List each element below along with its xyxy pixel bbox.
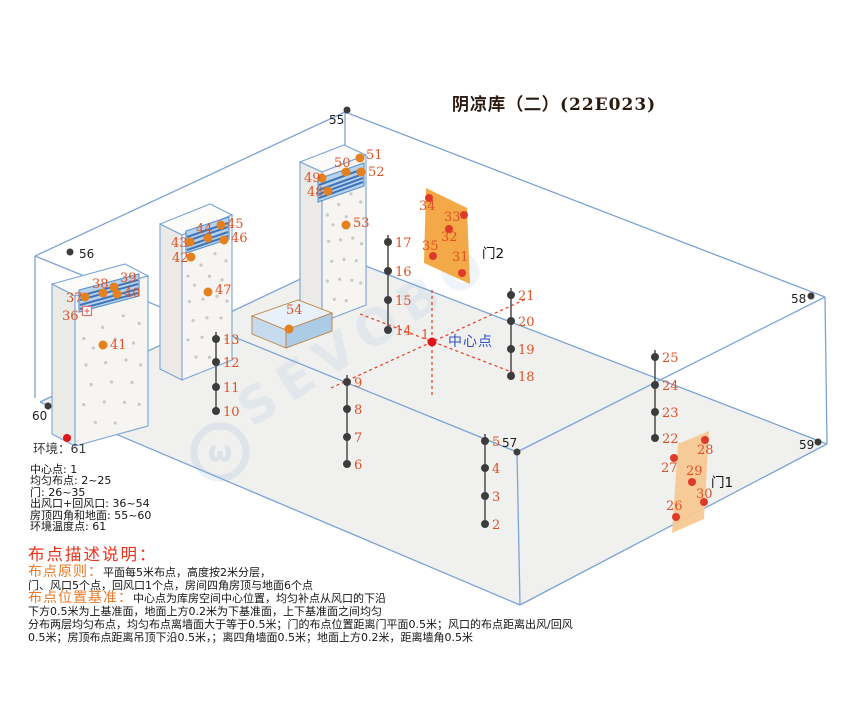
description-line: 布点原则：平面每5米布点，高度按2米分层， (28, 566, 648, 579)
watermark-logo: ω (208, 435, 232, 468)
point-18 (507, 372, 515, 380)
point-48 (324, 187, 333, 196)
point-3-label: 3 (492, 490, 500, 505)
point-40 (113, 290, 122, 299)
point-13-label: 13 (223, 333, 240, 348)
point-32-label: 32 (441, 230, 458, 245)
door-label: 门2 (482, 246, 504, 262)
point-14 (384, 326, 392, 334)
point-43-label: 43 (171, 236, 188, 251)
speckle-dot (186, 275, 189, 278)
point-44-label: 44 (196, 222, 213, 237)
point-51-label: 51 (366, 148, 383, 163)
description-line: 布点位置基准：中心点为库房空间中心位置，均匀补点从风口的下沿 (28, 592, 648, 605)
speckle-dot (110, 380, 113, 383)
speckle-dot (82, 337, 85, 340)
speckle-dot (326, 279, 329, 282)
point-33-label: 33 (444, 210, 461, 225)
speckle-dot (337, 203, 340, 206)
description-subheading: 布点原则： (28, 564, 103, 580)
speckle-dot (101, 326, 104, 329)
speckle-dot (327, 240, 330, 243)
legend-item: 环境温度点: 61 (30, 521, 151, 532)
point-26-label: 26 (666, 499, 683, 514)
speckle-dot (345, 299, 348, 302)
point-17 (384, 238, 392, 246)
point-49-label: 49 (304, 171, 321, 186)
page-title: 阴凉库（二）(22E023) (452, 90, 732, 115)
point-31-label: 31 (452, 250, 469, 265)
point-4-label: 4 (492, 462, 500, 477)
point-23-label: 23 (662, 406, 679, 421)
speckle-dot (326, 213, 329, 216)
speckle-dot (219, 316, 222, 319)
point-23 (651, 408, 659, 416)
speckle-dot (104, 361, 107, 364)
point-54-label: 54 (286, 303, 303, 318)
speckle-dot (205, 316, 208, 319)
speckle-dot (186, 338, 189, 341)
speckle-dot (90, 383, 93, 386)
point-12-label: 12 (223, 356, 240, 371)
point-20 (507, 317, 515, 325)
point-9 (343, 378, 351, 386)
speckle-dot (114, 421, 117, 424)
speckle-dot (359, 281, 362, 284)
point-31 (458, 269, 466, 277)
point-2 (481, 520, 489, 528)
point-8-label: 8 (354, 403, 362, 418)
speckle-dot (103, 400, 106, 403)
description-subheading: 布点位置基准： (28, 590, 133, 606)
speckle-dot (330, 260, 333, 263)
point-33 (460, 211, 468, 219)
point-35-label: 35 (422, 239, 439, 254)
speckle-dot (139, 363, 142, 366)
point-15 (384, 296, 392, 304)
point-19 (507, 345, 515, 353)
point-45 (217, 221, 226, 230)
speckle-dot (360, 242, 363, 245)
speckle-dot (355, 259, 358, 262)
point-60-label: 60 (32, 409, 47, 423)
speckle-dot (333, 298, 336, 301)
point-29-label: 29 (686, 464, 703, 479)
speckle-dot (359, 200, 362, 203)
speckle-dot (130, 381, 133, 384)
point-45-label: 45 (227, 217, 244, 232)
center-point-caption: 中心点 (448, 334, 493, 350)
point-46 (220, 236, 229, 245)
point-7 (343, 433, 351, 441)
point-5 (481, 437, 489, 445)
point-48-label: 48 (307, 185, 324, 200)
point-19-label: 19 (518, 343, 535, 358)
point-47-label: 47 (215, 283, 232, 298)
speckle-dot (138, 403, 141, 406)
point-29 (688, 478, 696, 486)
point-57-label: 57 (502, 436, 517, 450)
point-6-label: 6 (354, 458, 362, 473)
point-50-label: 50 (334, 156, 351, 171)
speckle-dot (193, 284, 196, 287)
description-line: 下方0.5米为上基准面，地面上方0.2米为下基准面，上下基准面之间均匀 (28, 605, 648, 618)
point-14-label: 14 (395, 324, 412, 339)
speckle-dot (338, 278, 341, 281)
speckle-dot (331, 223, 334, 226)
speckle-dot (345, 215, 348, 218)
point-47 (204, 288, 213, 297)
environment-label: 环境：61 (33, 441, 86, 456)
speckle-dot (122, 314, 125, 317)
point-24-label: 24 (662, 379, 679, 394)
speckle-dot (201, 298, 204, 301)
point-46-label: 46 (231, 231, 248, 246)
point-24 (651, 381, 659, 389)
speckle-dot (349, 192, 352, 195)
point-26 (672, 513, 680, 521)
point-36-label: 36 (62, 309, 79, 324)
point-27-label: 27 (661, 461, 678, 476)
point-10 (212, 407, 220, 415)
point-22-label: 22 (662, 432, 679, 447)
point-12 (212, 358, 220, 366)
point-25-label: 25 (662, 351, 679, 366)
speckle-dot (225, 300, 228, 303)
point-18-label: 18 (518, 370, 535, 385)
point-5-label: 5 (492, 435, 500, 450)
point-3 (481, 492, 489, 500)
point-22 (651, 434, 659, 442)
point-58-label: 58 (791, 292, 806, 306)
point-25 (651, 353, 659, 361)
point-42-label: 42 (172, 251, 189, 266)
legend: 中心点: 1均匀布点: 2~25门: 26~35出风口+回风口: 36~54房顶… (30, 464, 151, 532)
point-15-label: 15 (395, 294, 412, 309)
speckle-dot (224, 259, 227, 262)
point-40-label: 40 (124, 286, 141, 301)
speckle-dot (342, 258, 345, 261)
speckle-dot (82, 403, 85, 406)
speckle-dot (94, 421, 97, 424)
point-34-label: 34 (419, 199, 436, 214)
speckle-dot (213, 252, 216, 255)
speckle-dot (84, 363, 87, 366)
speckle-dot (194, 355, 197, 358)
point-20-label: 20 (518, 315, 535, 330)
point-6 (343, 460, 351, 468)
point-11 (212, 383, 220, 391)
point-52-label: 52 (368, 165, 385, 180)
point-54 (285, 325, 294, 334)
speckle-dot (188, 300, 191, 303)
point-52 (357, 168, 366, 177)
point-56 (67, 249, 74, 256)
point-1-label: 1 (421, 328, 429, 343)
door-label: 门1 (711, 475, 733, 491)
point-53-label: 53 (353, 216, 370, 231)
point-51 (356, 154, 365, 163)
point-21 (507, 291, 515, 299)
speckle-dot (208, 275, 211, 278)
description-line: 0.5米；房顶布点距离吊顶下沿0.5米，；离四角墙面0.5米；地面上方0.2米，… (28, 631, 648, 644)
speckle-dot (132, 341, 135, 344)
point-8 (343, 405, 351, 413)
speckle-dot (92, 346, 95, 349)
description-line: 分布两层均匀布点，均匀布点离墙面大于等于0.5米；门的布点位置距离门平面0.5米… (28, 618, 648, 631)
point-55 (344, 107, 351, 114)
point-56-label: 56 (79, 247, 94, 261)
diagram-canvas: SEVOBO ω (0, 0, 859, 710)
point-21-label: 21 (518, 289, 535, 304)
speckle-dot (220, 278, 223, 281)
point-38-label: 38 (92, 277, 109, 292)
speckle-dot (123, 401, 126, 404)
point-28-label: 28 (697, 443, 714, 458)
speckle-dot (200, 336, 203, 339)
point-7-label: 7 (354, 431, 362, 446)
speckle-dot (199, 264, 202, 267)
point-41-label: 41 (110, 338, 127, 353)
point-53 (342, 221, 351, 230)
point-2-label: 2 (492, 518, 500, 533)
point-10-label: 10 (223, 405, 240, 420)
speckle-dot (208, 356, 211, 359)
speckle-dot (351, 237, 354, 240)
point-58 (808, 293, 815, 300)
point-16-label: 16 (395, 265, 412, 280)
point-59 (815, 439, 822, 446)
legend-item: 出风口+回风口: 36~54 (30, 498, 151, 509)
point-37-label: 37 (66, 291, 83, 306)
speckle-dot (339, 238, 342, 241)
point-4 (481, 464, 489, 472)
speckle-dot (191, 319, 194, 322)
speckle-dot (138, 322, 141, 325)
description-heading: 布点描述说明： (28, 545, 648, 564)
point-11-label: 11 (223, 381, 240, 396)
description-block: 布点描述说明：布点原则：平面每5米布点，高度按2米分层，门、风口5个点，回风口1… (28, 545, 648, 644)
point-39-label: 39 (120, 271, 137, 286)
speckle-dot (125, 358, 128, 361)
speckle-dot (350, 279, 353, 282)
point-17-label: 17 (395, 236, 412, 251)
point-16 (384, 267, 392, 275)
point-41 (99, 341, 108, 350)
point-13 (212, 335, 220, 343)
point-9-label: 9 (354, 376, 362, 391)
point-55-label: 55 (329, 113, 344, 127)
point-59-label: 59 (799, 438, 814, 452)
